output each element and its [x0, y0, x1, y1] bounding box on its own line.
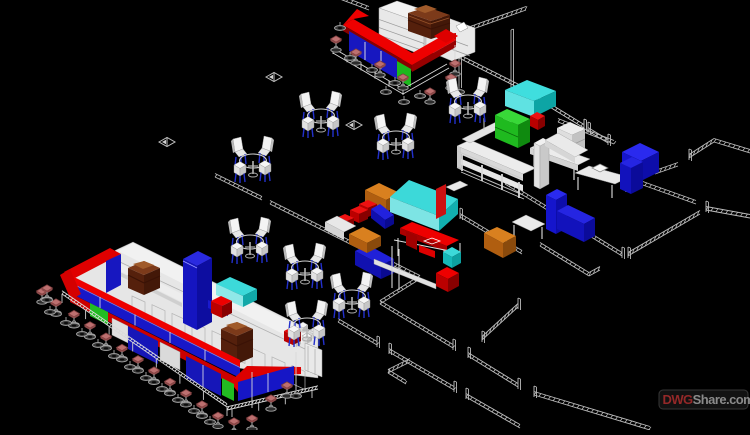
svg-text:DWGShare.com: DWGShare.com	[663, 392, 750, 407]
